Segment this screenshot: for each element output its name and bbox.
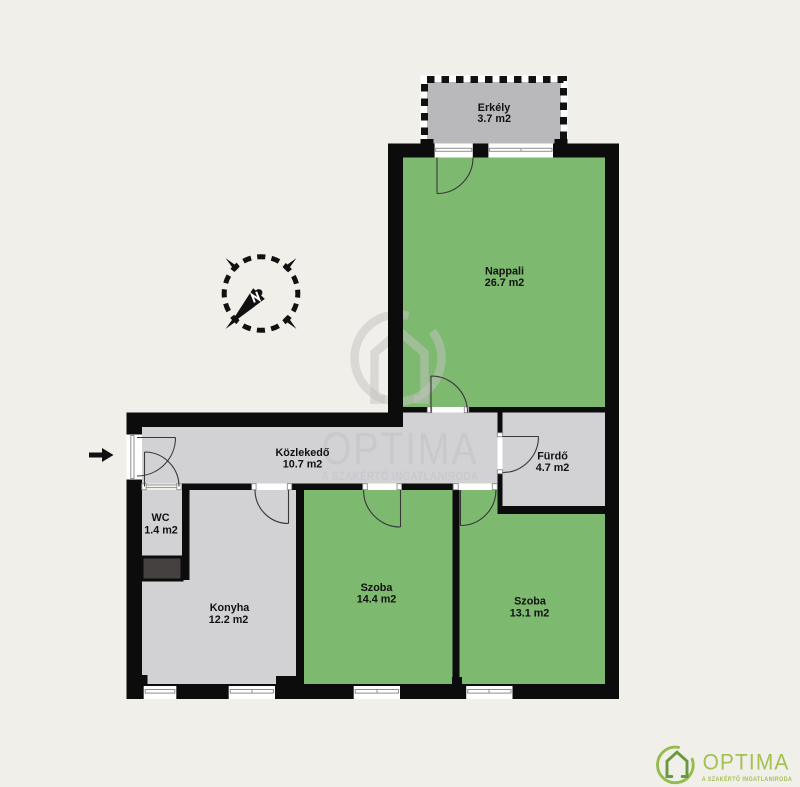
svg-text:26.7 m2: 26.7 m2 xyxy=(485,277,525,289)
svg-text:A SZAKÉRTŐ INGATLANIRODA: A SZAKÉRTŐ INGATLANIRODA xyxy=(702,775,793,784)
svg-text:WC: WC xyxy=(152,512,170,524)
svg-text:13.1 m2: 13.1 m2 xyxy=(510,608,550,620)
svg-text:Szoba: Szoba xyxy=(514,596,547,608)
svg-text:1.4 m2: 1.4 m2 xyxy=(144,525,178,537)
svg-text:Közlekedő: Közlekedő xyxy=(276,447,330,459)
svg-text:Szoba: Szoba xyxy=(361,582,394,594)
svg-text:Konyha: Konyha xyxy=(210,602,251,614)
svg-text:OPTIMA: OPTIMA xyxy=(703,750,790,775)
svg-text:OPTIMA: OPTIMA xyxy=(322,423,479,474)
svg-text:Nappali: Nappali xyxy=(485,266,524,278)
svg-text:A SZAKÉRTŐ INGATLANIRODA: A SZAKÉRTŐ INGATLANIRODA xyxy=(322,469,479,483)
svg-text:4.7 m2: 4.7 m2 xyxy=(536,462,570,474)
svg-text:10.7 m2: 10.7 m2 xyxy=(283,459,323,471)
svg-text:12.2 m2: 12.2 m2 xyxy=(209,614,249,626)
svg-text:14.4 m2: 14.4 m2 xyxy=(357,594,397,606)
svg-text:Fürdő: Fürdő xyxy=(537,451,568,463)
svg-text:3.7 m2: 3.7 m2 xyxy=(477,113,511,125)
